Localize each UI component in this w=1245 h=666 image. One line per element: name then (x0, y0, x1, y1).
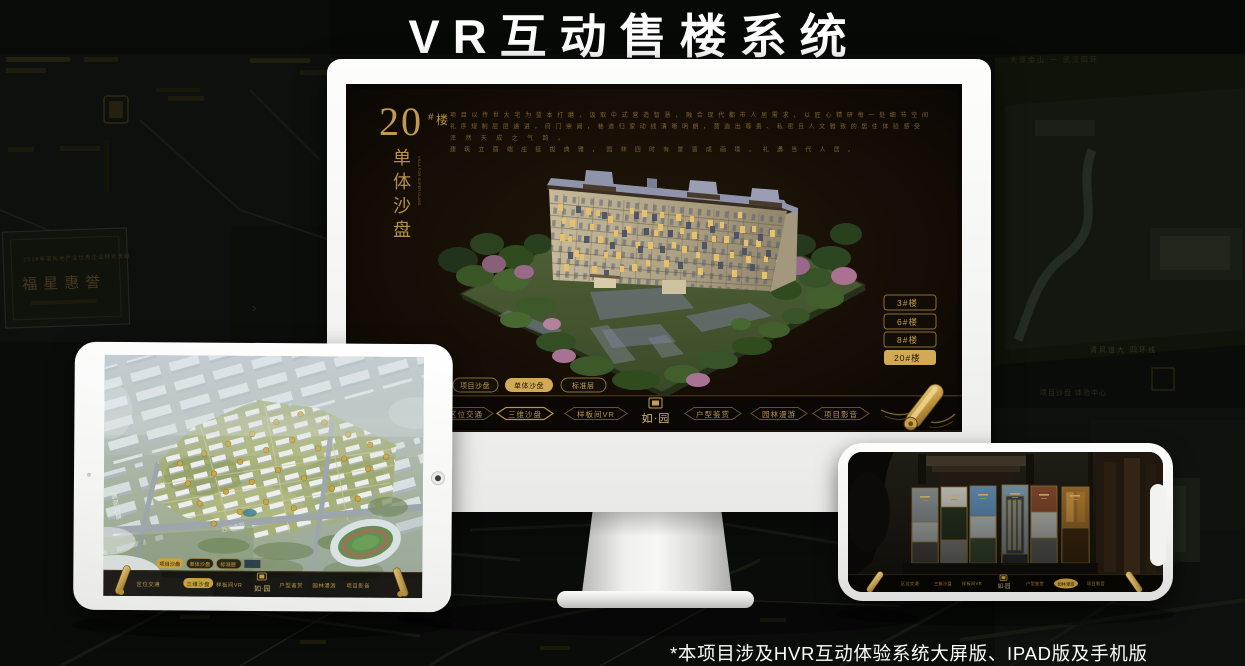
svg-text:清风道大 四环线: 清风道大 四环线 (1090, 345, 1157, 354)
svg-text:项目沙盘: 项目沙盘 (159, 560, 180, 568)
svg-text:体: 体 (393, 172, 411, 192)
svg-text:建筑立面端庄挺拔典雅，园林四时有景皆成画境，礼遇当代人居。: 建筑立面端庄挺拔典雅，园林四时有景皆成画境，礼遇当代人居。 (450, 146, 854, 154)
svg-text:单体沙盘: 单体沙盘 (189, 560, 210, 568)
svg-text:楼: 楼 (436, 112, 448, 127)
svg-text:沙: 沙 (393, 196, 411, 216)
svg-text:20#楼: 20#楼 (894, 353, 921, 363)
svg-text:标准层: 标准层 (220, 560, 236, 568)
svg-text:样板间VR: 样板间VR (216, 581, 242, 589)
svg-text:›: › (252, 300, 256, 315)
svg-text:区位交通: 区位交通 (449, 409, 483, 419)
svg-text:项目影音: 项目影音 (346, 582, 370, 590)
svg-text:户型鉴赏: 户型鉴赏 (696, 409, 730, 419)
svg-text:如·园: 如·园 (642, 411, 671, 425)
svg-text:项目沙盘 体验中心: 项目沙盘 体验中心 (1040, 388, 1107, 397)
svg-text:6#楼: 6#楼 (897, 317, 918, 327)
svg-text:园林漫游: 园林漫游 (312, 581, 336, 589)
svg-text:三维沙盘: 三维沙盘 (186, 580, 210, 588)
svg-text:#: # (428, 112, 434, 123)
svg-text:户型鉴赏: 户型鉴赏 (279, 581, 303, 589)
svg-text:项目沙盘: 项目沙盘 (460, 381, 490, 390)
svg-text:VILLA FOR SUPER CLASS: VILLA FOR SUPER CLASS (417, 156, 422, 206)
svg-text:盘: 盘 (393, 220, 411, 240)
svg-text:8#楼: 8#楼 (897, 335, 918, 345)
svg-text:如·园: 如·园 (254, 584, 270, 593)
svg-text:三维沙盘: 三维沙盘 (508, 409, 542, 419)
svg-text:项目影音: 项目影音 (824, 409, 858, 419)
svg-text:园林漫游: 园林漫游 (762, 409, 796, 419)
svg-text:样板间VR: 样板间VR (577, 409, 615, 419)
svg-text:区位交通: 区位交通 (136, 580, 160, 588)
svg-text:20: 20 (379, 99, 423, 144)
svg-text:单: 单 (393, 148, 411, 168)
svg-text:单体沙盘: 单体沙盘 (514, 381, 544, 390)
svg-text:福星惠誉: 福星惠誉 (22, 274, 107, 294)
svg-text:3#楼: 3#楼 (897, 298, 918, 308)
svg-text:标准层: 标准层 (572, 381, 595, 390)
